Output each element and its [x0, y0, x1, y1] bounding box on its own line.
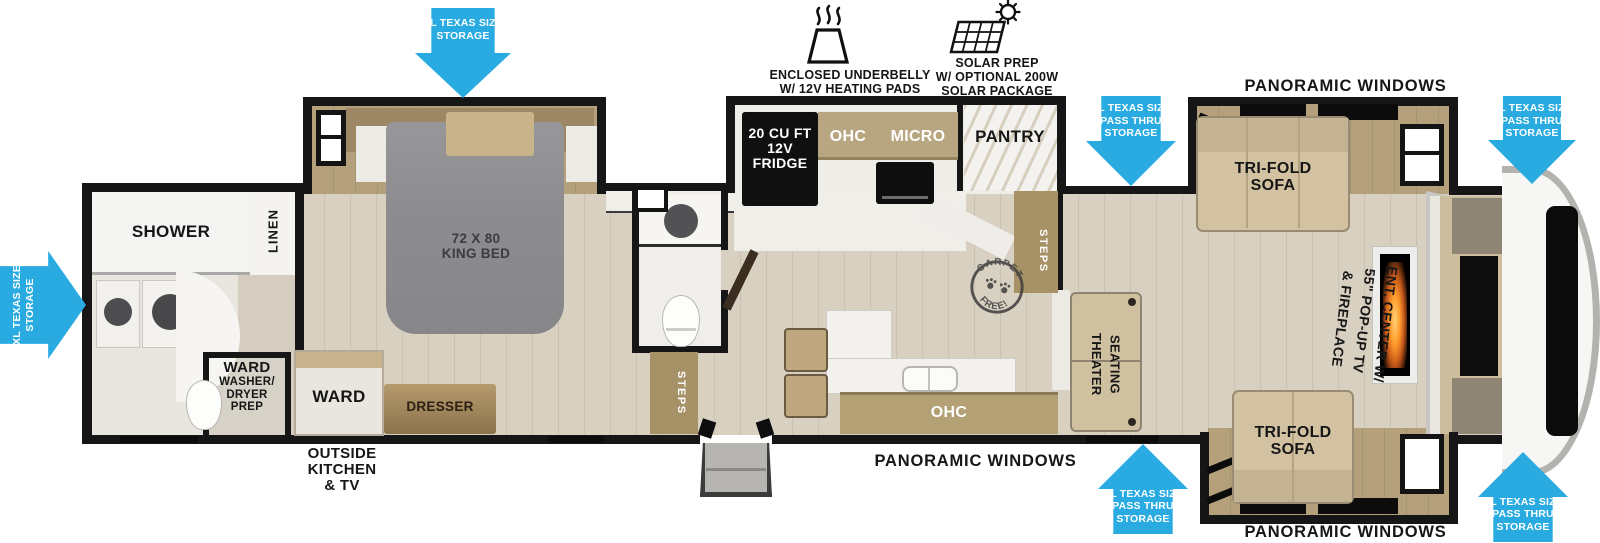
ward-label: WARD: [294, 388, 384, 406]
ward-washer-line: DRYER: [205, 389, 289, 401]
rear-storage-arrow-text: XL TEXAS SIZE STORAGE: [11, 250, 37, 360]
arrow-text-line: STORAGE: [24, 250, 37, 360]
mid-bath-wall: [632, 188, 639, 352]
panoramic-windows-label-top: PANORAMIC WINDOWS: [1228, 78, 1463, 96]
panoramic-windows-label-bottom: PANORAMIC WINDOWS: [858, 453, 1093, 471]
solar-panel-icon: [946, 0, 1026, 56]
arrow-text-line: XL TEXAS SIZE: [415, 17, 511, 30]
wall: [303, 97, 312, 194]
ward-closet-wall: [203, 352, 291, 358]
pantry-label: PANTRY: [962, 128, 1058, 146]
linen-label: LINEN: [266, 208, 280, 255]
ward-cabinet-top: [296, 352, 382, 368]
wall: [597, 97, 606, 194]
theater-seating-label: THEATER SEATING: [1086, 308, 1128, 420]
paw-print-icon: [984, 277, 1011, 294]
heating-pads-icon: [794, 2, 862, 66]
king-bed-line: KING BED: [388, 247, 564, 262]
toilet-mid: [662, 295, 700, 347]
arrow-text-line: STORAGE: [1086, 127, 1176, 140]
washer-door: [104, 298, 132, 326]
sofa-bottom-line: TRI-FOLD: [1232, 424, 1354, 441]
bedroom-steps-label: STEPS: [662, 356, 686, 430]
wall: [82, 183, 92, 443]
arrow-text-line: STORAGE: [1098, 513, 1188, 526]
living-pass-thru-arrow: XL TEXAS SIZE PASS THRU STORAGE: [1098, 444, 1188, 534]
sofa-top-line: SOFA: [1196, 177, 1350, 194]
top-slide-right-window: [1400, 124, 1444, 186]
nightstand-left: [356, 126, 388, 182]
tv-recess: [1460, 256, 1498, 376]
top-slide-right-window-bar: [1404, 151, 1440, 155]
king-bed-line: 72 X 80: [388, 232, 564, 247]
wall: [1449, 432, 1458, 524]
island-sink: [902, 366, 958, 392]
kitchen-return-wall: [1052, 290, 1070, 390]
sofa-top-backrest: [1198, 118, 1348, 152]
island-chair: [784, 374, 828, 418]
ward-washer-line: WARD: [205, 360, 289, 376]
outside-kitchen-line: & TV: [294, 478, 390, 494]
theater-cupholder: [1128, 298, 1136, 306]
bottom-slide-right-window: [1400, 434, 1444, 494]
front-cap-window: [1546, 206, 1578, 436]
wall: [1449, 97, 1458, 194]
wall: [1057, 186, 1197, 194]
hall-window: [634, 186, 668, 212]
toilet-mid-seat-line: [666, 328, 696, 331]
arrow-text-line: STORAGE: [1488, 127, 1576, 140]
shower-label: SHOWER: [92, 223, 250, 241]
stamp-text-bottom: FREE!: [976, 293, 1012, 315]
king-bed-label: 72 X 80 KING BED: [388, 232, 564, 261]
arrow-text-line: XL TEXAS SIZE: [1488, 102, 1576, 115]
solar-caption-line: SOLAR PACKAGE: [912, 84, 1082, 98]
wall: [1057, 96, 1066, 193]
mid-bath-wall: [721, 188, 728, 250]
dresser-label: DRESSER: [384, 400, 496, 415]
arrow-text-line: XL TEXAS SIZE: [1086, 102, 1176, 115]
mid-bath-sink: [664, 204, 698, 238]
ward-washer-line: WASHER/: [205, 376, 289, 388]
outside-kitchen-line: OUTSIDE: [294, 446, 390, 462]
solar-caption: SOLAR PREP W/ OPTIONAL 200W SOLAR PACKAG…: [912, 56, 1082, 98]
arrow-text-line: PASS THRU: [1478, 508, 1568, 521]
arrow-text-line: XL TEXAS SIZE: [1478, 496, 1568, 509]
panoramic-windows-label-bottom-right: PANORAMIC WINDOWS: [1228, 524, 1463, 542]
wall: [303, 97, 606, 106]
carpet-free-stamp: CARPET FREE!: [963, 253, 1030, 320]
ohc-label: OHC: [820, 128, 876, 145]
cooktop-handle: [882, 196, 928, 199]
arrow-text-line: STORAGE: [1478, 521, 1568, 534]
arrow-text-line: XL TEXAS SIZE: [11, 250, 24, 360]
solar-caption-line: SOLAR PREP: [912, 56, 1082, 70]
wall: [1200, 432, 1209, 524]
rv-floorplan: SHOWER LINEN WARD WASHER/ DRYER PREP 72 …: [0, 0, 1600, 543]
wall: [82, 183, 308, 192]
theater-cupholder: [1128, 418, 1136, 426]
theater-line: SEATING: [1105, 308, 1124, 420]
solar-caption-line: W/ OPTIONAL 200W: [912, 70, 1082, 84]
pantry-floor: [964, 104, 1058, 191]
fridge-line: FRIDGE: [742, 156, 818, 171]
theater-line: THEATER: [1086, 308, 1105, 420]
outside-kitchen-line: KITCHEN: [294, 462, 390, 478]
arrow-text-line: PASS THRU: [1098, 500, 1188, 513]
wall: [606, 183, 734, 191]
micro-label: MICRO: [878, 128, 958, 145]
arrow-text-line: STORAGE: [415, 30, 511, 43]
nightstand-right: [566, 126, 598, 182]
island-chair: [784, 328, 828, 372]
tri-fold-sofa-top-label: TRI-FOLD SOFA: [1196, 160, 1350, 195]
living-steps-label: STEPS: [1024, 214, 1048, 288]
svg-text:FREE!: FREE!: [976, 293, 1012, 315]
rear-window-strip: [120, 436, 198, 443]
fridge-line: 12V: [742, 141, 818, 156]
island-ohc-label: OHC: [840, 404, 1058, 421]
sofa-top-line: TRI-FOLD: [1196, 160, 1350, 177]
wall: [726, 96, 735, 193]
sofa-bottom-line: SOFA: [1232, 441, 1354, 458]
rear-storage-arrow: XL TEXAS SIZE STORAGE: [0, 251, 86, 359]
bed-pillow: [446, 112, 534, 156]
tri-fold-sofa-bottom-label: TRI-FOLD SOFA: [1232, 424, 1354, 459]
arrow-text-line: XL TEXAS SIZE: [1098, 488, 1188, 501]
island-sink-divider: [928, 368, 930, 390]
bedroom-storage-arrow: XL TEXAS SIZE STORAGE: [415, 8, 511, 98]
bedroom-window-bar: [319, 135, 343, 139]
fridge-line: 20 CU FT: [742, 126, 818, 141]
arrow-text-line: PASS THRU: [1086, 115, 1176, 128]
arrow-text-line: PASS THRU: [1488, 115, 1576, 128]
ward-washer-label: WARD WASHER/ DRYER PREP: [205, 360, 289, 413]
ward-washer-line: PREP: [205, 401, 289, 413]
fridge-label: 20 CU FT 12V FRIDGE: [742, 126, 818, 171]
outside-kitchen-label: OUTSIDE KITCHEN & TV: [294, 446, 390, 495]
kitchen-pass-thru-arrow: XL TEXAS SIZE PASS THRU STORAGE: [1086, 96, 1176, 186]
bedroom-window-strip: [548, 436, 604, 443]
entry-steps-tread: [706, 468, 766, 471]
living-window-strip: [1086, 436, 1158, 443]
